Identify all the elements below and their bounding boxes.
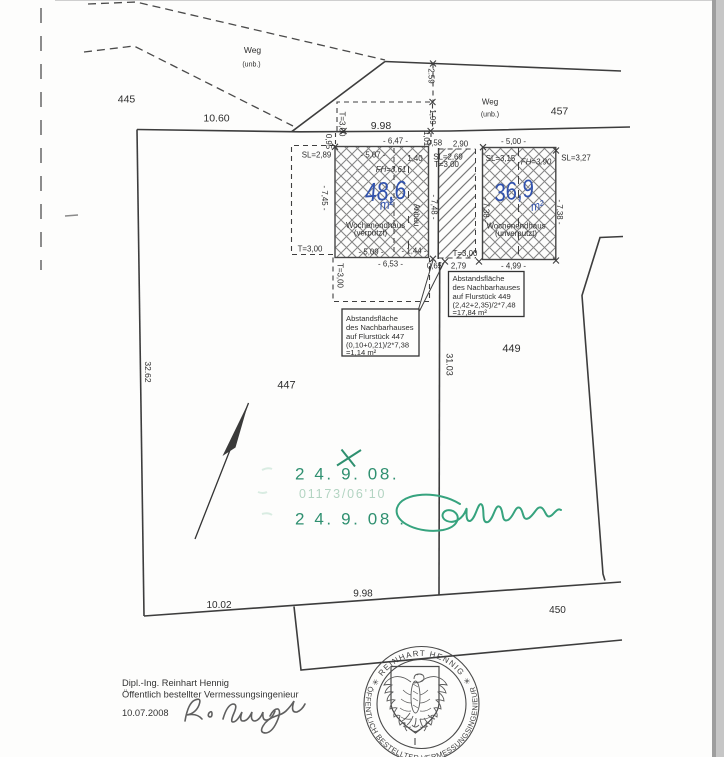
svg-text:1,40: 1,40 <box>407 154 423 163</box>
svg-text:- 5,09 -: - 5,09 - <box>359 248 384 257</box>
svg-text:449: 449 <box>502 343 520 355</box>
svg-text:SL=2,89: SL=2,89 <box>302 151 332 160</box>
svg-text:(unverputzt): (unverputzt) <box>495 229 537 238</box>
svg-text:(verputzt): (verputzt) <box>354 229 388 238</box>
svg-text:Abstandsfläche: Abstandsfläche <box>346 314 398 323</box>
svg-text:- 6,47 -: - 6,47 - <box>383 137 408 146</box>
svg-text:T=3,00: T=3,00 <box>336 263 345 288</box>
svg-text:32.62: 32.62 <box>143 361 153 383</box>
svg-text:1,99: 1,99 <box>428 109 437 125</box>
svg-text:36,9: 36,9 <box>492 173 536 207</box>
svg-text:FH=3,90: FH=3,90 <box>521 158 552 167</box>
svg-text:- 5,07 -: - 5,07 - <box>361 151 386 160</box>
svg-text:10.02: 10.02 <box>206 600 231 611</box>
svg-text:(unb.): (unb.) <box>481 112 499 119</box>
svg-text:2 4. 9. 08 .: 2 4. 9. 08 . <box>295 510 407 529</box>
svg-text:T=3,00: T=3,00 <box>453 249 478 258</box>
svg-text:(unb.): (unb.) <box>242 62 260 69</box>
svg-text:SL=3,27: SL=3,27 <box>561 154 591 163</box>
svg-text:Dipl.-Ing. Reinhart Hennig: Dipl.-Ing. Reinhart Hennig <box>122 678 229 688</box>
svg-text:447: 447 <box>277 380 295 392</box>
svg-text:- 7,48 -: - 7,48 - <box>430 195 439 220</box>
svg-text:- 4,99 -: - 4,99 - <box>501 262 526 271</box>
svg-text:2 4. 9. 08.: 2 4. 9. 08. <box>295 465 399 484</box>
svg-text:450: 450 <box>549 605 566 616</box>
svg-text:2.59: 2.59 <box>427 68 436 84</box>
svg-text:T=3,00: T=3,00 <box>338 112 347 137</box>
svg-text:2,79: 2,79 <box>451 262 467 271</box>
svg-text:des Nachbarhauses: des Nachbarhauses <box>453 283 521 292</box>
svg-text:457: 457 <box>551 106 569 118</box>
svg-text:=1,14 m²: =1,14 m² <box>346 348 377 357</box>
svg-text:9.98: 9.98 <box>353 589 373 600</box>
svg-text:- 1,44 -: - 1,44 - <box>402 247 427 256</box>
svg-text:445: 445 <box>118 94 136 106</box>
svg-text:31.03: 31.03 <box>445 353 455 376</box>
svg-text:m²: m² <box>379 195 395 213</box>
svg-text:SL=3,15: SL=3,15 <box>486 154 516 163</box>
svg-text:Öffentlich bestellter Vermessu: Öffentlich bestellter Vermessungsingenie… <box>122 690 299 700</box>
svg-text:0,65: 0,65 <box>427 262 443 271</box>
svg-text:Abstandsfläche: Abstandsfläche <box>453 274 505 283</box>
svg-text:des Nachbarhauses: des Nachbarhauses <box>346 323 414 332</box>
svg-text:9.98: 9.98 <box>371 120 392 132</box>
svg-text:=17,84 m²: =17,84 m² <box>453 308 488 317</box>
svg-text:- 7,38 -: - 7,38 - <box>482 198 491 223</box>
svg-text:- 6,53 -: - 6,53 - <box>378 260 403 269</box>
svg-text:- 7,45 -: - 7,45 - <box>320 186 329 211</box>
svg-text:T=3,00: T=3,00 <box>434 160 459 169</box>
svg-text:2,90: 2,90 <box>453 140 469 149</box>
svg-text:01173/06'10: 01173/06'10 <box>299 487 386 501</box>
svg-text:10.07.2008: 10.07.2008 <box>122 708 169 718</box>
svg-text:0,95: 0,95 <box>324 134 333 150</box>
svg-text:10.60: 10.60 <box>203 113 229 125</box>
svg-text:T=3,00: T=3,00 <box>298 245 323 254</box>
svg-text:Weg: Weg <box>482 98 498 107</box>
svg-text:FH=3,61: FH=3,61 <box>376 165 406 174</box>
svg-text:- 7,38 -: - 7,38 - <box>555 200 564 225</box>
svg-text:Anbau: Anbau <box>412 204 421 227</box>
svg-text:- 5,00 -: - 5,00 - <box>501 137 526 146</box>
svg-text:0,58: 0,58 <box>427 139 443 148</box>
svg-text:Weg: Weg <box>244 45 262 55</box>
